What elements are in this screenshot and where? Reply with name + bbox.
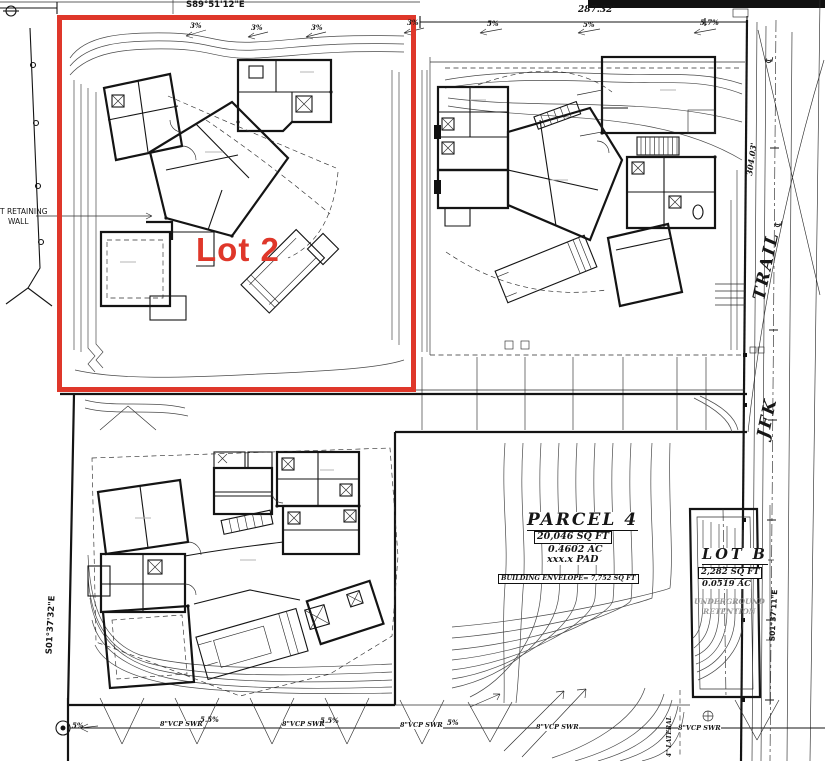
slope-top-7: 5.7% (700, 19, 719, 26)
dimension-top-right-label: 287.32' (578, 6, 615, 15)
underground-retention-line2: RETENTION (703, 608, 756, 616)
slope-bottom-3: 5.5% (320, 717, 339, 724)
sewer-label-5: 8"VCP SWR (678, 725, 721, 732)
underground-retention-line1: UNDERGROUND (694, 598, 765, 606)
parcel4-pad: xxx.x PAD (547, 555, 598, 565)
building-envelope-label: BUILDING ENVELOPE= 7,752 SQ FT (498, 574, 639, 584)
slope-bottom-2: 5.5% (200, 716, 219, 723)
site-plan: Lot 2 S89°51'12"E 287.32' 304.03' TRAIL … (0, 0, 825, 761)
lot2-highlight-box (57, 15, 416, 392)
lot2-label: Lot 2 (196, 231, 280, 269)
parcel4-area-sqft: 20,046 SQ FT (534, 531, 612, 544)
lower-left-house-floor-plan (88, 448, 398, 696)
retaining-wall-label-line1: T RETAINING (0, 208, 48, 216)
upper-right-house-floor-plan (434, 57, 745, 306)
parcel4-title: PARCEL 4 (527, 512, 638, 531)
sewer-label-4: 8"VCP SWR (536, 724, 579, 731)
retaining-wall-label-line2: WALL (8, 218, 29, 226)
lateral-label: 4" LATERAL (667, 716, 673, 757)
slope-top-6: 5% (583, 21, 595, 28)
lot-b-area-ac: 0.0519 AC (702, 580, 751, 589)
sewer-label-1: 8"VCP SWR (160, 721, 203, 728)
slope-top-5: 5% (487, 20, 499, 27)
bearing-top-label: S89°51'12"E (186, 1, 245, 10)
slope-top-4: 3% (407, 19, 419, 26)
slope-bottom-4: 5% (447, 719, 459, 726)
lot-b-area-sqft: 2,282 SQ FT (698, 567, 762, 579)
sewer-label-2: 8"VCP SWR (282, 721, 325, 728)
slope-bottom-1: 5% (72, 722, 84, 729)
lot-b-title: LOT B (702, 548, 768, 565)
slope-top-1: 3% (190, 22, 202, 29)
slope-top-3: 3% (311, 24, 323, 31)
sewer-label-3: 8"VCP SWR (400, 722, 443, 729)
slope-top-2: 3% (251, 24, 263, 31)
